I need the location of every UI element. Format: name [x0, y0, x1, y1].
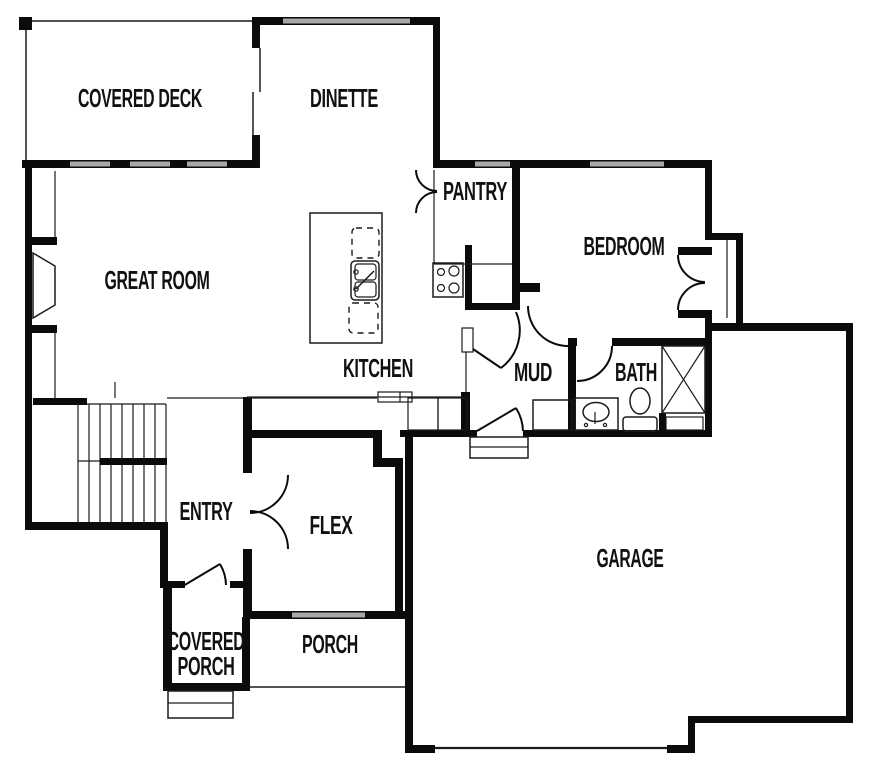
- vanity-sink-icon: [575, 398, 618, 430]
- walls: [19, 17, 853, 753]
- stove-cooktop-icon: [433, 263, 463, 297]
- front-stoop-icon: [168, 691, 233, 718]
- dishwasher-icon: [352, 228, 379, 258]
- room-label-bedroom: BEDROOM: [584, 231, 665, 261]
- island-sink-icon: [351, 261, 379, 300]
- floor-plan-drawing: COVERED DECK DINETTE PANTRY BEDROOM GREA…: [0, 0, 874, 768]
- fireplace-icon: [33, 171, 55, 398]
- room-label-porch: PORCH: [302, 629, 358, 659]
- linen-closet-icon: [662, 346, 705, 430]
- kitchen-island-icon: [310, 213, 382, 343]
- stairs-icon: [78, 404, 167, 522]
- room-label-covered-porch-line2: PORCH: [178, 651, 235, 681]
- room-label-pantry: PANTRY: [443, 176, 507, 206]
- stair-rail: [100, 458, 167, 465]
- room-label-entry: ENTRY: [180, 496, 233, 526]
- room-label-dinette: DINETTE: [310, 83, 378, 113]
- room-label-flex: FLEX: [310, 510, 354, 540]
- mud-bench-icon: [533, 400, 572, 430]
- dishwasher-icon: [349, 303, 378, 333]
- room-label-covered-deck: COVERED DECK: [78, 83, 202, 113]
- floor-plan-page: COVERED DECK DINETTE PANTRY BEDROOM GREA…: [0, 0, 874, 768]
- toilet-icon: [623, 388, 657, 431]
- room-label-kitchen: KITCHEN: [343, 353, 413, 383]
- room-label-great-room: GREAT ROOM: [105, 265, 210, 295]
- room-label-garage: GARAGE: [597, 543, 664, 573]
- room-label-bath: BATH: [615, 357, 657, 387]
- room-label-mud: MUD: [514, 357, 552, 387]
- entry-stoop-icon: [470, 437, 528, 458]
- dinette-wall-lines: [253, 48, 260, 135]
